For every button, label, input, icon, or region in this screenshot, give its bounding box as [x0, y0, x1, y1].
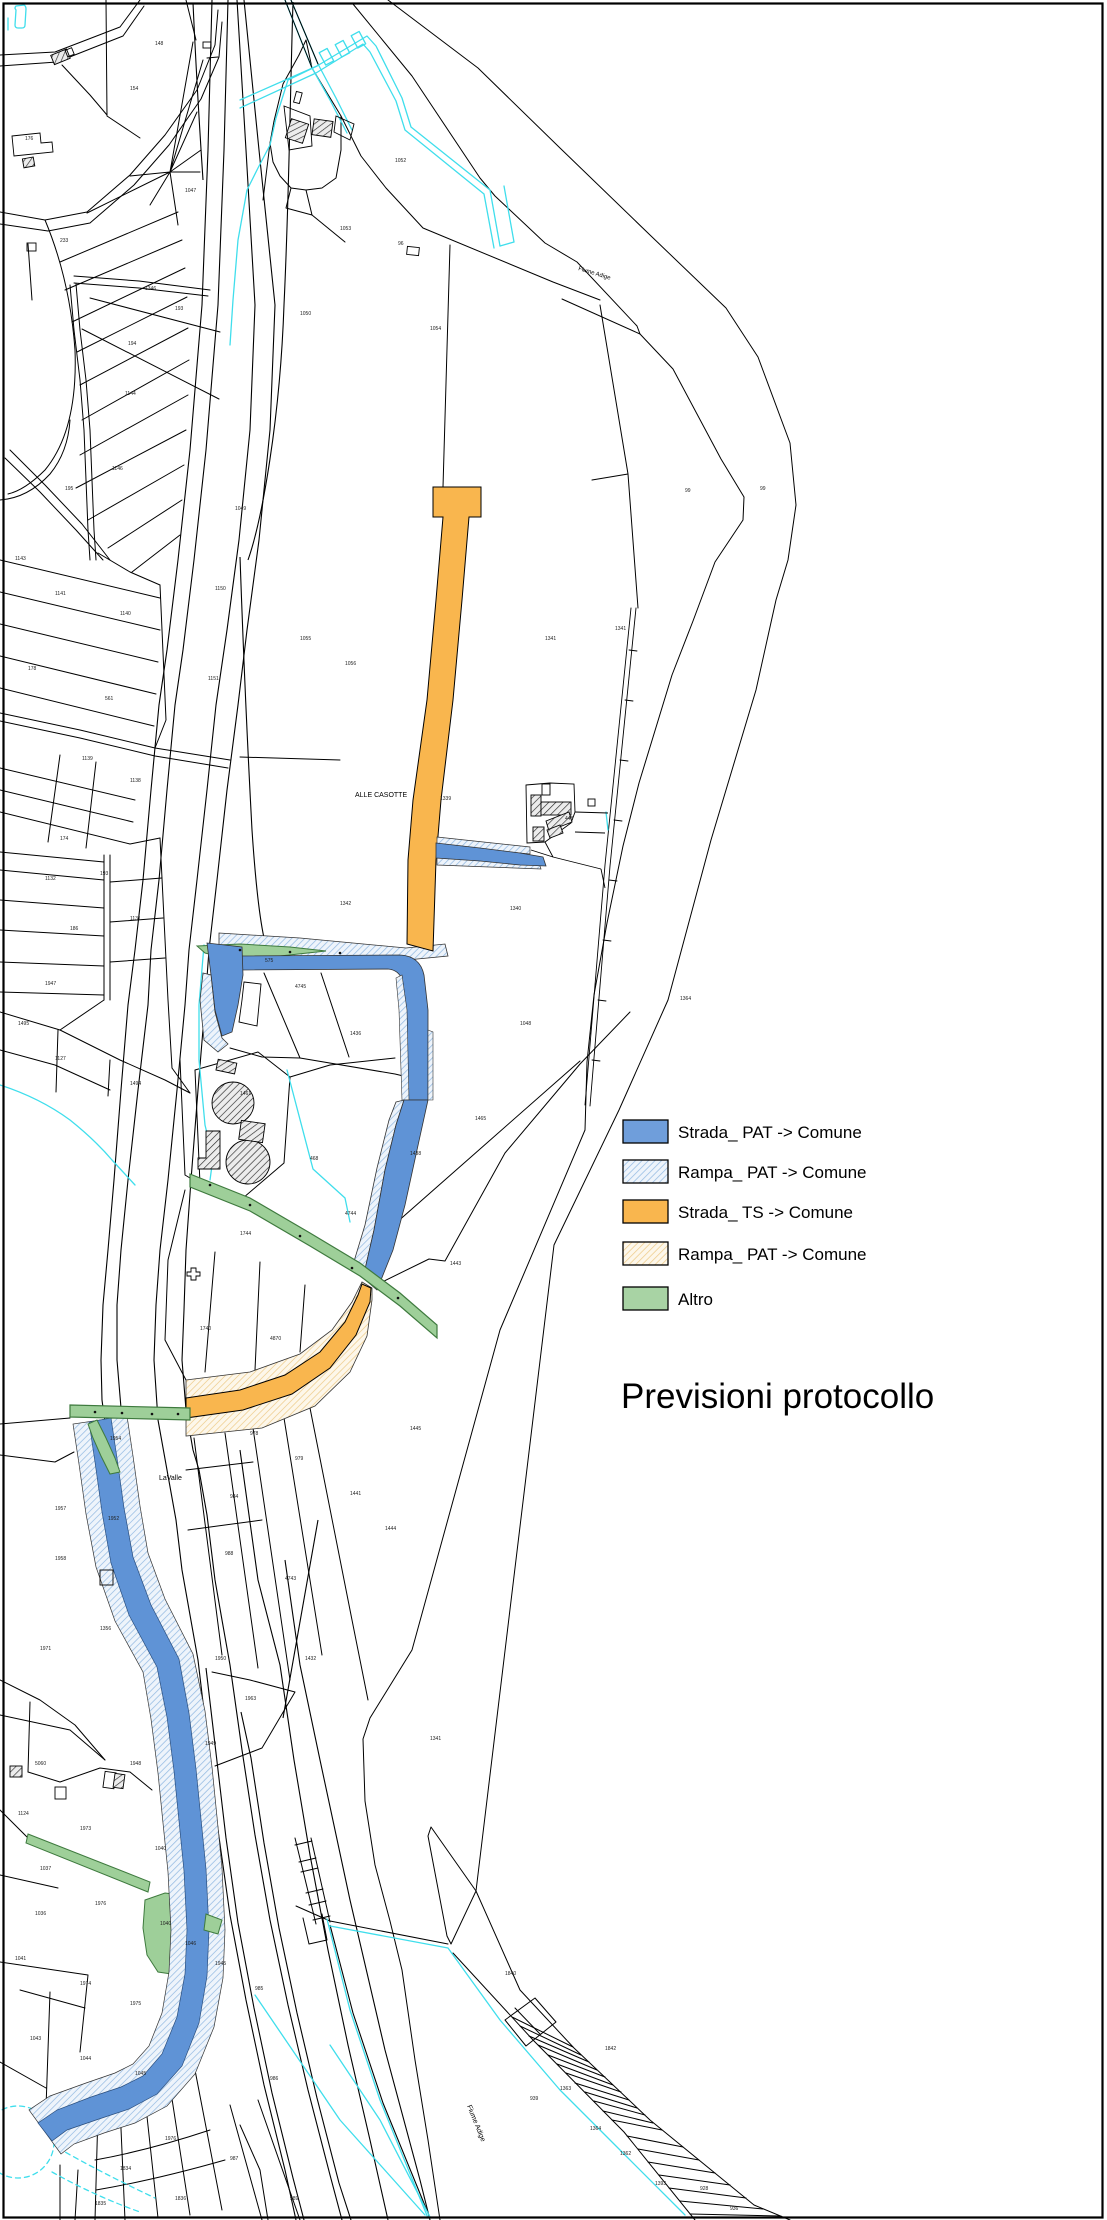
svg-text:1047: 1047: [185, 188, 196, 194]
svg-text:186: 186: [70, 926, 79, 932]
svg-text:1140: 1140: [120, 611, 131, 617]
svg-text:1341: 1341: [430, 1736, 441, 1742]
svg-text:99: 99: [685, 488, 691, 494]
svg-text:1740: 1740: [200, 1326, 211, 1332]
svg-text:987: 987: [230, 2156, 239, 2162]
svg-text:1124: 1124: [18, 1811, 29, 1817]
svg-text:1842: 1842: [605, 2046, 616, 2052]
svg-text:LaValle: LaValle: [159, 1475, 182, 1482]
svg-text:1049: 1049: [235, 506, 246, 512]
svg-text:979: 979: [295, 1456, 304, 1462]
svg-text:1053: 1053: [340, 226, 351, 232]
svg-text:1045: 1045: [135, 2071, 146, 2077]
svg-text:193: 193: [100, 871, 109, 877]
svg-text:Altro: Altro: [678, 1290, 713, 1309]
svg-text:985: 985: [255, 1986, 264, 1992]
svg-text:1461: 1461: [240, 1091, 251, 1097]
svg-text:194: 194: [128, 341, 137, 347]
svg-text:1050: 1050: [300, 311, 311, 317]
svg-text:988: 988: [225, 1551, 234, 1557]
svg-text:1949: 1949: [205, 1741, 216, 1747]
svg-text:1052: 1052: [395, 158, 406, 164]
svg-text:1054: 1054: [430, 326, 441, 332]
svg-text:1494: 1494: [130, 1081, 141, 1087]
svg-text:468: 468: [310, 1156, 319, 1162]
svg-text:575: 575: [265, 958, 274, 964]
svg-text:1364: 1364: [680, 996, 691, 1002]
svg-text:Previsioni protocollo: Previsioni protocollo: [621, 1377, 934, 1416]
svg-text:1141: 1141: [55, 591, 66, 597]
svg-text:1957: 1957: [55, 1506, 66, 1512]
svg-text:1040: 1040: [160, 1921, 171, 1927]
svg-text:193: 193: [175, 306, 184, 312]
svg-text:1836: 1836: [175, 2196, 186, 2202]
svg-text:Rampa_ PAT -> Comune: Rampa_ PAT -> Comune: [678, 1245, 867, 1264]
svg-text:1037: 1037: [40, 1866, 51, 1872]
svg-text:1044: 1044: [80, 2056, 91, 2062]
svg-text:1056: 1056: [345, 661, 356, 667]
svg-text:1840: 1840: [505, 1971, 516, 1977]
svg-text:1976: 1976: [95, 1901, 106, 1907]
svg-text:1436: 1436: [350, 1031, 361, 1037]
svg-text:99: 99: [760, 486, 766, 492]
svg-text:1393: 1393: [655, 2181, 666, 2187]
svg-text:1138: 1138: [130, 778, 141, 784]
svg-text:ALLE CASOTTE: ALLE CASOTTE: [355, 792, 407, 799]
svg-text:1041: 1041: [15, 1956, 26, 1962]
svg-text:1048: 1048: [520, 1021, 531, 1027]
svg-text:1364: 1364: [590, 2126, 601, 2132]
svg-text:1445: 1445: [410, 1426, 421, 1432]
svg-text:154: 154: [130, 86, 139, 92]
svg-text:1340: 1340: [510, 906, 521, 912]
svg-text:989: 989: [290, 2196, 299, 2202]
svg-text:1974: 1974: [80, 1981, 91, 1987]
svg-text:4745: 4745: [295, 984, 306, 990]
svg-text:1963: 1963: [245, 1696, 256, 1702]
svg-text:1744: 1744: [240, 1231, 251, 1237]
svg-text:1131: 1131: [130, 916, 141, 922]
svg-text:1341: 1341: [545, 636, 556, 642]
svg-text:1971: 1971: [40, 1646, 51, 1652]
svg-text:195: 195: [65, 486, 74, 492]
svg-text:1444: 1444: [385, 1526, 396, 1532]
svg-text:1432: 1432: [305, 1656, 316, 1662]
svg-text:1139: 1139: [82, 756, 93, 762]
svg-text:Rampa_ PAT -> Comune: Rampa_ PAT -> Comune: [678, 1163, 867, 1182]
svg-text:96: 96: [398, 241, 404, 247]
svg-text:1976: 1976: [165, 2136, 176, 2142]
svg-text:1127: 1127: [55, 1056, 66, 1062]
svg-text:4870: 4870: [270, 1336, 281, 1342]
svg-text:1834: 1834: [120, 2166, 131, 2172]
svg-text:5060: 5060: [35, 1761, 46, 1767]
svg-text:1954: 1954: [110, 1436, 121, 1442]
svg-text:1948: 1948: [130, 1761, 141, 1767]
svg-text:1363: 1363: [560, 2086, 571, 2092]
svg-text:1835: 1835: [95, 2201, 106, 2207]
svg-text:1341: 1341: [615, 626, 626, 632]
svg-text:1151: 1151: [208, 676, 219, 682]
svg-text:1046: 1046: [185, 1941, 196, 1947]
svg-text:928: 928: [700, 2186, 709, 2192]
svg-text:148: 148: [155, 41, 164, 47]
svg-text:1950: 1950: [215, 1656, 226, 1662]
svg-text:1132: 1132: [45, 876, 56, 882]
svg-text:1495: 1495: [18, 1021, 29, 1027]
svg-text:1975: 1975: [130, 2001, 141, 2007]
svg-text:939: 939: [530, 2096, 539, 2102]
svg-text:178: 178: [28, 666, 37, 672]
svg-text:1958: 1958: [55, 1556, 66, 1562]
svg-text:1339: 1339: [440, 796, 451, 802]
svg-text:978: 978: [250, 1431, 259, 1437]
svg-text:Strada_ TS -> Comune: Strada_ TS -> Comune: [678, 1203, 853, 1222]
svg-text:233: 233: [60, 238, 69, 244]
svg-text:1043: 1043: [30, 2036, 41, 2042]
svg-text:1947: 1947: [45, 981, 56, 987]
svg-text:561: 561: [105, 696, 114, 702]
svg-text:1055: 1055: [300, 636, 311, 642]
svg-text:1146: 1146: [112, 466, 123, 472]
svg-text:1945: 1945: [215, 1961, 226, 1967]
svg-text:1441: 1441: [350, 1491, 361, 1497]
svg-text:4744: 4744: [345, 1211, 356, 1217]
svg-text:Strada_ PAT -> Comune: Strada_ PAT -> Comune: [678, 1123, 862, 1142]
svg-text:1952: 1952: [108, 1516, 119, 1522]
svg-text:4743: 4743: [285, 1576, 296, 1582]
svg-text:1346: 1346: [145, 286, 156, 292]
svg-text:1465: 1465: [475, 1116, 486, 1122]
svg-text:1438: 1438: [410, 1151, 421, 1157]
svg-text:1040: 1040: [155, 1846, 166, 1852]
svg-text:1144: 1144: [125, 391, 136, 397]
svg-text:1342: 1342: [340, 901, 351, 907]
svg-text:1443: 1443: [450, 1261, 461, 1267]
svg-text:1356: 1356: [100, 1626, 111, 1632]
svg-text:1150: 1150: [215, 586, 226, 592]
svg-text:936: 936: [730, 2206, 739, 2212]
svg-text:176: 176: [25, 136, 34, 142]
svg-text:1362: 1362: [620, 2151, 631, 2157]
svg-text:448: 448: [565, 816, 574, 822]
svg-text:1036: 1036: [35, 1911, 46, 1917]
svg-text:984: 984: [230, 1494, 239, 1500]
svg-text:1143: 1143: [15, 556, 26, 562]
svg-text:1973: 1973: [80, 1826, 91, 1832]
svg-text:986: 986: [270, 2076, 279, 2082]
svg-text:174: 174: [60, 836, 69, 842]
